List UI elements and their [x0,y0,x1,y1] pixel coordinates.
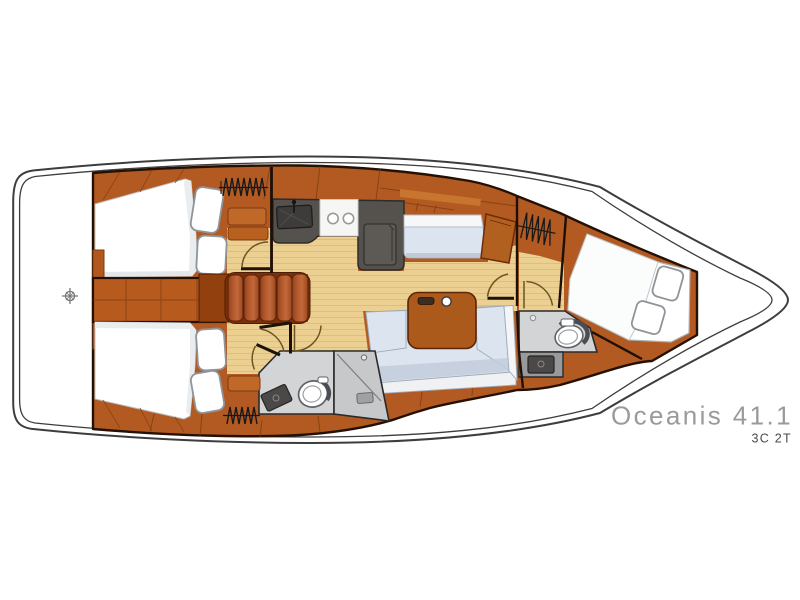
svg-text:3C 2T: 3C 2T [751,432,792,446]
svg-text:Oceanis 41.1: Oceanis 41.1 [611,401,793,431]
